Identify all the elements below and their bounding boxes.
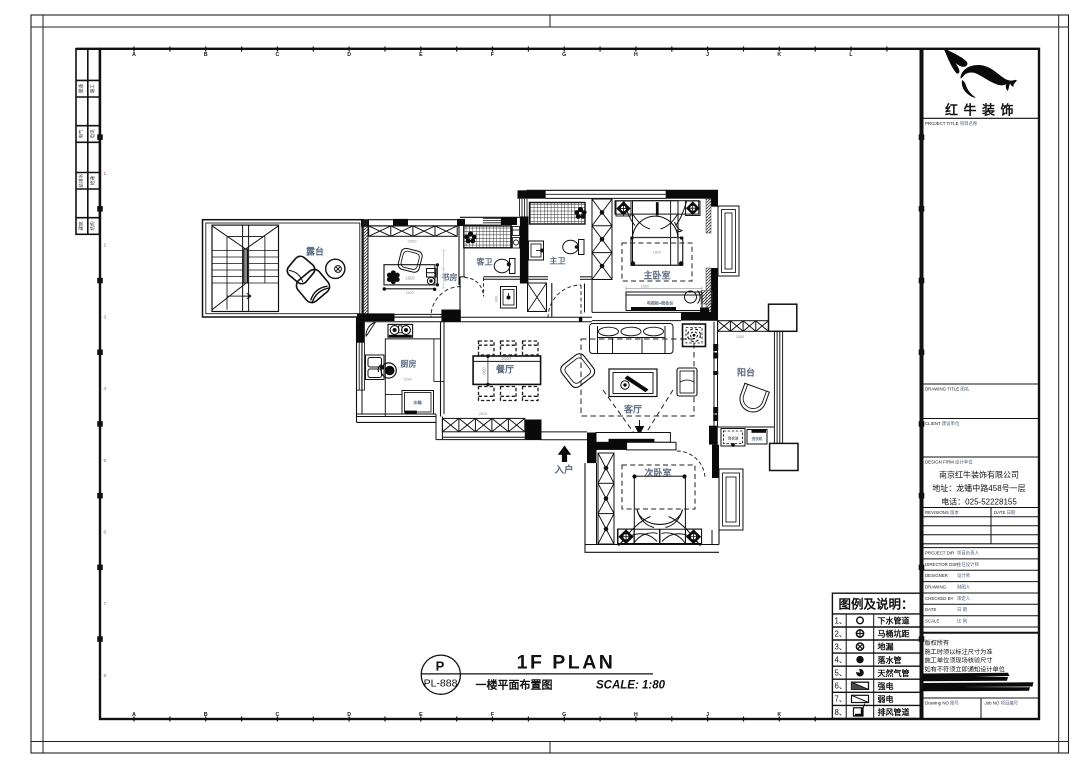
svg-text:1500: 1500	[736, 335, 744, 339]
svg-text:5: 5	[104, 458, 107, 463]
svg-text:版权所有: 版权所有	[925, 639, 950, 647]
svg-text:南京红牛装饰有限公司: 南京红牛装饰有限公司	[939, 470, 1019, 480]
svg-text:DIRECTOR DSR 主任设计师: DIRECTOR DSR 主任设计师	[925, 561, 980, 568]
svg-text:B: B	[204, 712, 208, 718]
svg-text:书房: 书房	[442, 272, 458, 282]
svg-text:马桶坑距: 马桶坑距	[878, 629, 910, 639]
svg-text:DRAWING TITLE 图名: DRAWING TITLE 图名	[925, 386, 969, 393]
svg-text:E: E	[419, 712, 423, 718]
svg-text:客卫: 客卫	[476, 257, 493, 267]
svg-text:天然气管: 天然气管	[878, 668, 910, 678]
svg-text:J: J	[706, 712, 709, 718]
svg-text:DATE 日 期: DATE 日 期	[925, 607, 968, 613]
svg-text:暖工: 暖工	[89, 84, 96, 94]
svg-text:洗衣机: 洗衣机	[752, 436, 763, 441]
svg-text:PL-888: PL-888	[424, 678, 458, 690]
svg-text:6、: 6、	[835, 682, 847, 691]
svg-text:7: 7	[104, 601, 107, 606]
svg-text:C: C	[276, 52, 280, 58]
svg-text:8: 8	[104, 673, 107, 678]
svg-text:PROJECT DIR 项目负责人: PROJECT DIR 项目负责人	[925, 550, 980, 557]
svg-text:E: E	[419, 52, 423, 58]
svg-text:露台: 露台	[306, 246, 324, 257]
svg-text:电讯: 电讯	[89, 129, 96, 139]
svg-text:4、: 4、	[835, 656, 847, 665]
svg-text:暖通: 暖通	[78, 84, 85, 94]
svg-text:2、: 2、	[835, 629, 847, 638]
svg-text:Drawing NO 图号: Drawing NO 图号	[925, 701, 960, 707]
svg-text:施工单位须现场核验尺寸: 施工单位须现场核验尺寸	[925, 657, 993, 665]
svg-text:主卫: 主卫	[550, 256, 566, 266]
svg-text:1530: 1530	[403, 378, 411, 382]
svg-text:2500: 2500	[408, 239, 418, 244]
svg-text:一楼平面布置图: 一楼平面布置图	[476, 678, 553, 692]
svg-text:地漏: 地漏	[878, 642, 894, 652]
svg-text:主卧室: 主卧室	[643, 270, 670, 281]
svg-text:A: A	[132, 52, 136, 58]
svg-text:J: J	[706, 52, 709, 58]
svg-text:4: 4	[104, 386, 107, 391]
svg-text:6: 6	[104, 530, 107, 535]
svg-text:850: 850	[482, 367, 487, 375]
svg-text:P: P	[436, 659, 445, 674]
svg-text:G: G	[562, 712, 566, 718]
svg-text:1、: 1、	[835, 616, 847, 625]
svg-text:F: F	[491, 712, 494, 718]
svg-text:7、: 7、	[835, 695, 847, 704]
svg-text:2: 2	[104, 243, 107, 248]
svg-text:Job NO 项目编号: Job NO 项目编号	[985, 700, 1019, 707]
svg-text:2810: 2810	[479, 412, 487, 416]
svg-text:600: 600	[495, 296, 499, 302]
svg-text:1500: 1500	[641, 285, 649, 289]
svg-text:G: G	[562, 52, 566, 58]
svg-text:冰箱: 冰箱	[413, 399, 422, 406]
svg-text:1500: 1500	[405, 276, 415, 281]
svg-text:阳台: 阳台	[737, 367, 755, 378]
svg-text:REVISIONS 版本: REVISIONS 版本	[925, 509, 960, 516]
svg-text:F: F	[491, 52, 494, 58]
svg-text:5、: 5、	[835, 669, 847, 678]
svg-text:2000: 2000	[501, 356, 511, 361]
svg-text:L: L	[849, 52, 853, 58]
svg-text:K: K	[777, 712, 781, 718]
svg-text:DRAWING 制图人: DRAWING 制图人	[925, 584, 971, 591]
svg-text:H: H	[634, 52, 638, 58]
svg-text:落水管: 落水管	[878, 655, 902, 665]
svg-text:如有不符须立即通知设计单位: 如有不符须立即通知设计单位	[925, 665, 1005, 673]
svg-text:1800: 1800	[653, 251, 661, 255]
svg-text:下水管道: 下水管道	[878, 616, 910, 626]
svg-text:D: D	[347, 52, 351, 58]
svg-text:8、: 8、	[835, 708, 847, 717]
svg-text:CHECKED BY 审定人: CHECKED BY 审定人	[925, 595, 971, 602]
svg-text:1: 1	[104, 171, 107, 176]
svg-text:H: H	[634, 712, 638, 718]
svg-text:洗衣池: 洗衣池	[728, 436, 739, 441]
svg-text:电气: 电气	[78, 129, 84, 139]
svg-text:1300: 1300	[405, 291, 413, 295]
svg-text:施工时须以标注尺寸为准: 施工时须以标注尺寸为准	[925, 648, 993, 656]
svg-text:给通: 给通	[89, 176, 96, 186]
svg-text:C: C	[276, 712, 280, 718]
svg-text:B: B	[204, 52, 208, 58]
svg-text:CLIENT 建设单位: CLIENT 建设单位	[925, 420, 960, 427]
svg-text:电视柜+梳妆台: 电视柜+梳妆台	[647, 300, 673, 306]
svg-text:红牛装饰: 红牛装饰	[945, 103, 1019, 118]
svg-text:1F PLAN: 1F PLAN	[517, 652, 616, 674]
svg-text:K: K	[777, 52, 781, 58]
svg-text:PROJECT TITLE 项目名称: PROJECT TITLE 项目名称	[925, 120, 978, 127]
svg-text:厨房: 厨房	[401, 359, 417, 369]
svg-text:弱电: 弱电	[878, 694, 894, 704]
svg-text:建筑: 建筑	[78, 221, 85, 231]
svg-text:结构: 结构	[89, 221, 96, 231]
svg-text:客厅: 客厅	[623, 404, 642, 415]
svg-text:DESIGN FIRM 设计单位: DESIGN FIRM 设计单位	[925, 459, 973, 466]
svg-text:入户: 入户	[553, 464, 573, 476]
svg-text:DESIGNER 设计师: DESIGNER 设计师	[925, 572, 971, 579]
svg-text:排风管道: 排风管道	[878, 707, 910, 717]
svg-text:强电: 强电	[878, 681, 894, 691]
svg-text:电话：025-52228155: 电话：025-52228155	[941, 497, 1017, 507]
svg-text:餐厅: 餐厅	[495, 363, 514, 374]
svg-text:3、: 3、	[835, 642, 847, 651]
svg-text:3: 3	[104, 314, 107, 319]
svg-text:图例及说明：: 图例及说明：	[838, 597, 913, 612]
svg-text:D: D	[347, 712, 351, 718]
svg-text:SCALE: 1:80: SCALE: 1:80	[596, 680, 666, 692]
svg-text:SCALE 比 例: SCALE 比 例	[925, 618, 968, 625]
svg-text:地址：龙蟠中路458号一层: 地址：龙蟠中路458号一层	[932, 483, 1025, 493]
svg-text:给排水: 给排水	[78, 173, 85, 187]
svg-text:DATE 日期: DATE 日期	[994, 510, 1016, 516]
svg-text:A: A	[132, 712, 136, 718]
